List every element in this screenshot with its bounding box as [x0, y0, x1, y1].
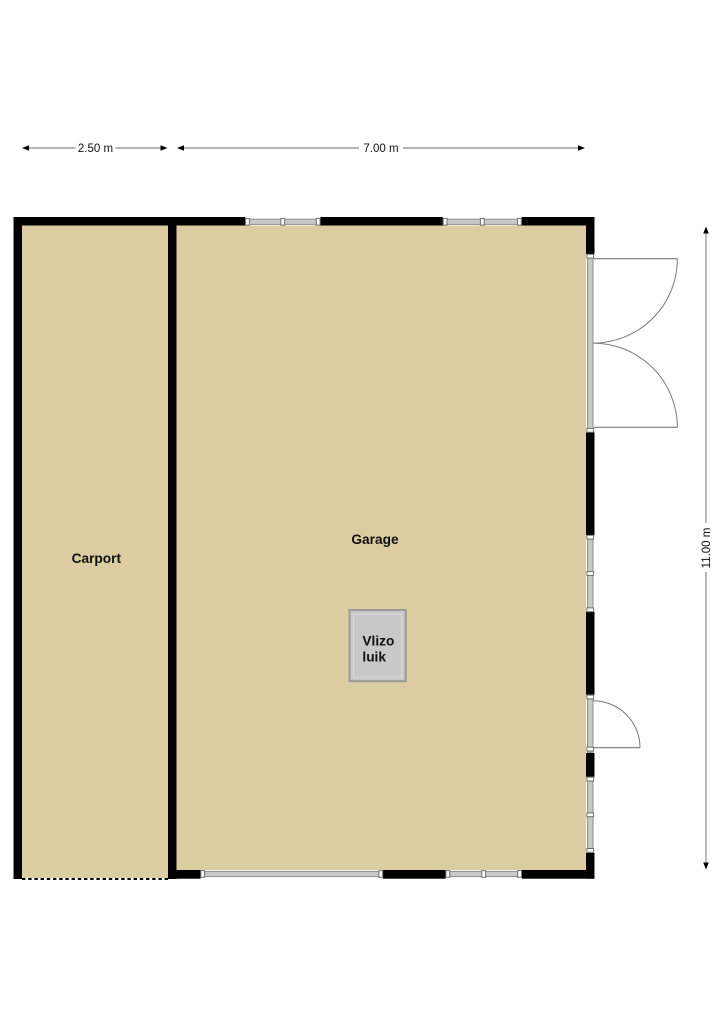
svg-text:luik: luik	[362, 650, 386, 665]
svg-text:7.00 m: 7.00 m	[363, 143, 398, 155]
svg-text:Garage: Garage	[351, 532, 399, 547]
svg-text:11.00 m: 11.00 m	[701, 528, 713, 569]
svg-text:Carport: Carport	[72, 551, 122, 566]
svg-text:2.50 m: 2.50 m	[78, 143, 113, 155]
svg-text:Vlizo: Vlizo	[362, 634, 394, 649]
